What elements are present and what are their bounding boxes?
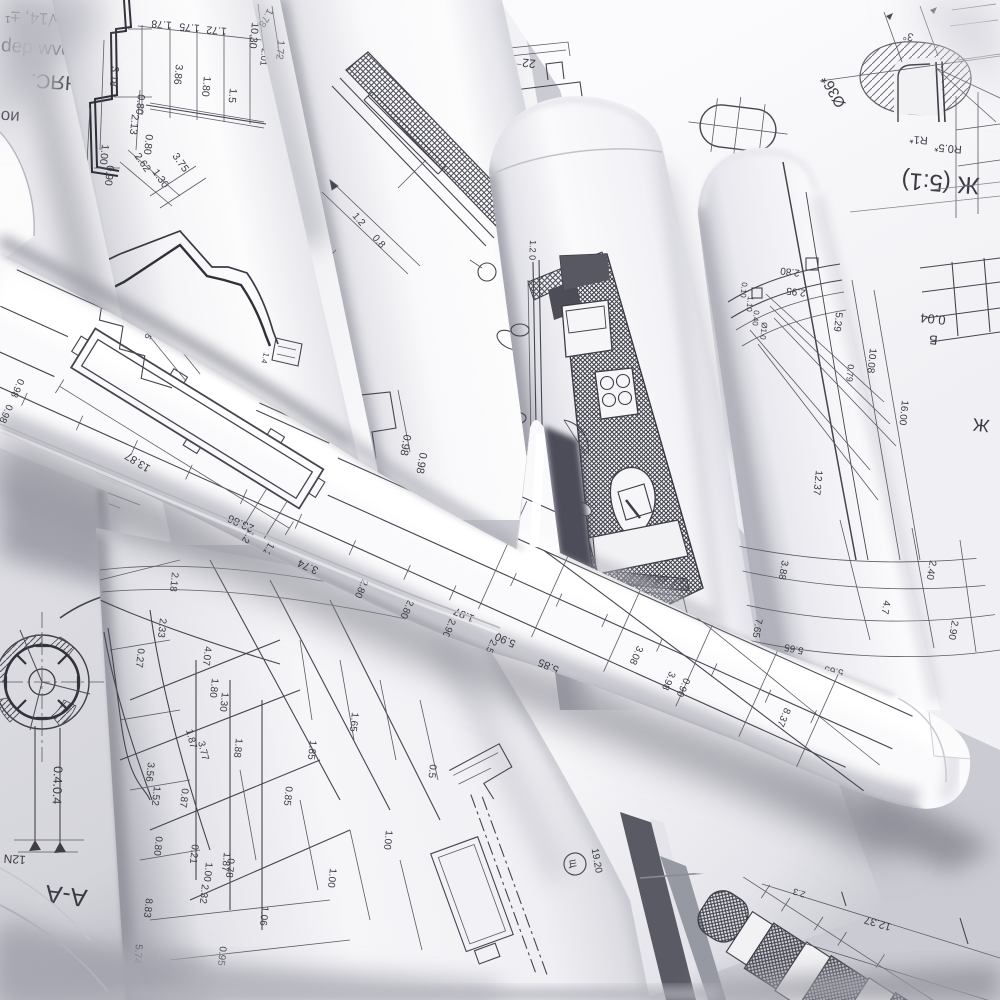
svg-text:A-A: A-A bbox=[44, 879, 89, 912]
svg-text:1.65: 1.65 bbox=[347, 712, 360, 733]
svg-text:3.56: 3.56 bbox=[143, 762, 156, 783]
svg-text:0.80: 0.80 bbox=[133, 94, 147, 116]
svg-text:1.80: 1.80 bbox=[207, 678, 220, 699]
svg-text:1.00: 1.00 bbox=[325, 868, 338, 889]
svg-text:1.5: 1.5 bbox=[225, 88, 238, 104]
svg-text:0.4.0.4: 0.4.0.4 bbox=[50, 766, 65, 805]
svg-text:1.88: 1.88 bbox=[231, 738, 244, 759]
svg-text:Ж (5:1): Ж (5:1) bbox=[901, 167, 981, 199]
svg-text:1.75: 1.75 bbox=[179, 20, 201, 34]
svg-text:0.40: 0.40 bbox=[750, 310, 761, 327]
svg-text:Ø1.0: Ø1.0 bbox=[758, 322, 769, 341]
svg-text:1.78: 1.78 bbox=[151, 17, 173, 31]
svg-text:1.72: 1.72 bbox=[206, 23, 228, 37]
svg-text:12N: 12N bbox=[3, 851, 26, 867]
svg-text:0.21: 0.21 bbox=[187, 844, 200, 865]
svg-text:8.83: 8.83 bbox=[141, 898, 154, 919]
svg-text:0.04: 0.04 bbox=[920, 310, 947, 328]
svg-text:0.95: 0.95 bbox=[215, 946, 228, 967]
svg-text:1.00: 1.00 bbox=[381, 830, 394, 851]
svg-text:0.27: 0.27 bbox=[133, 648, 146, 669]
svg-text:0.90: 0.90 bbox=[102, 165, 116, 187]
svg-text:3°: 3° bbox=[902, 29, 914, 43]
svg-text:1.2 0: 1.2 0 bbox=[527, 240, 538, 260]
svg-text:1.30: 1.30 bbox=[217, 692, 230, 713]
svg-text:1.06: 1.06 bbox=[257, 906, 270, 927]
svg-text:1.00: 1.00 bbox=[97, 144, 111, 166]
svg-text:1.85: 1.85 bbox=[305, 740, 318, 761]
svg-text:R0.5*: R0.5* bbox=[933, 141, 962, 155]
svg-text:0.80: 0.80 bbox=[151, 836, 164, 857]
svg-text:1.80: 1.80 bbox=[199, 76, 213, 98]
svg-text:4.07: 4.07 bbox=[200, 646, 213, 667]
svg-text:0.87: 0.87 bbox=[177, 788, 190, 809]
svg-text:3.18: 3.18 bbox=[107, 66, 121, 88]
svg-text:0.78: 0.78 bbox=[223, 858, 236, 879]
svg-text:0.85: 0.85 bbox=[281, 786, 294, 807]
svg-text:2.32: 2.32 bbox=[197, 884, 210, 905]
svg-text:Б: Б bbox=[928, 332, 938, 348]
svg-text:5.29: 5.29 bbox=[831, 312, 844, 333]
svg-text:0.79: 0.79 bbox=[844, 364, 856, 382]
svg-text:Ж: Ж bbox=[971, 414, 990, 436]
svg-text:R1*: R1* bbox=[908, 133, 928, 146]
svg-text:1.00: 1.00 bbox=[201, 862, 214, 883]
svg-text:2.33: 2.33 bbox=[155, 618, 168, 639]
svg-text:2.13: 2.13 bbox=[127, 114, 141, 136]
svg-text:3.86: 3.86 bbox=[171, 64, 185, 86]
svg-text:0.5: 0.5 bbox=[426, 764, 438, 779]
svg-text:1.52: 1.52 bbox=[149, 786, 162, 807]
